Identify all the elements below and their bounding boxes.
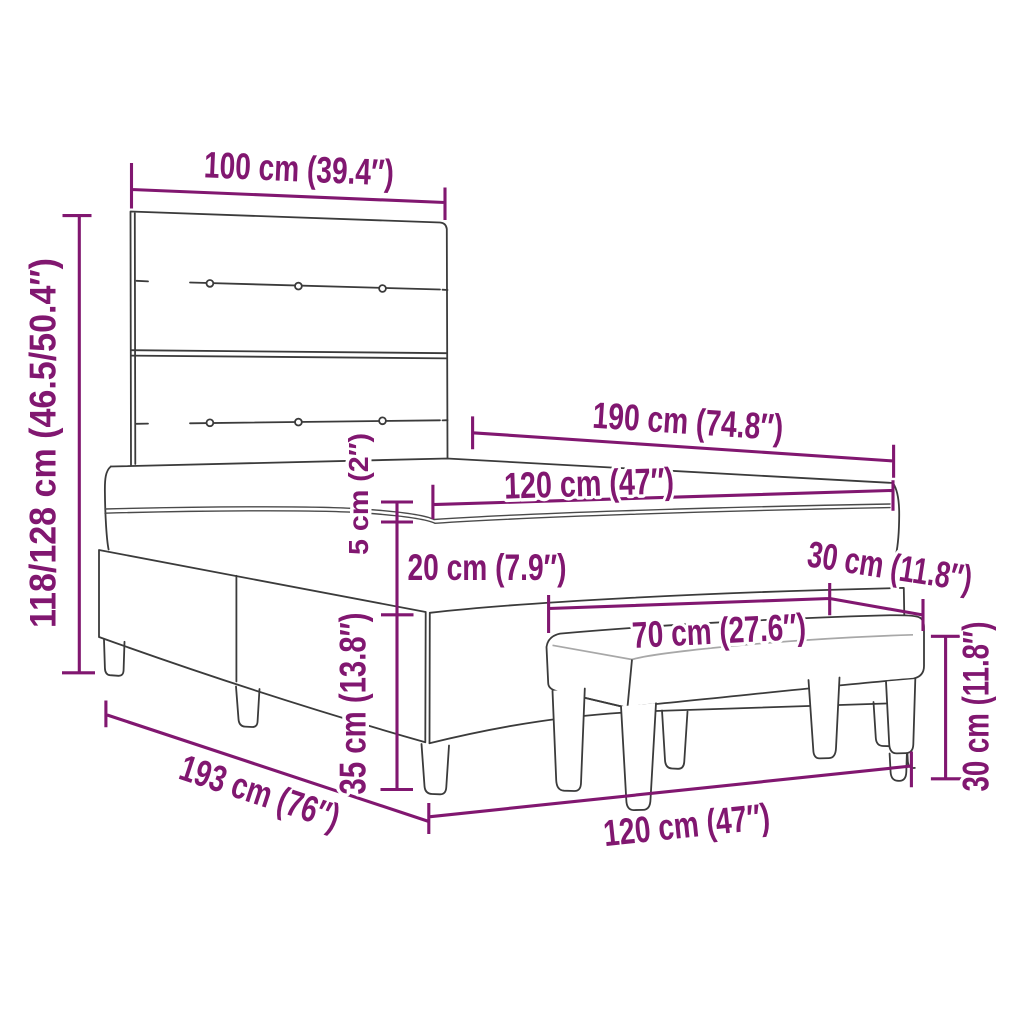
- svg-text:5 cm (2″): 5 cm (2″): [343, 433, 374, 555]
- svg-text:118/128 cm (46.5/50.4″): 118/128 cm (46.5/50.4″): [22, 258, 63, 628]
- svg-text:35 cm (13.8″): 35 cm (13.8″): [332, 613, 373, 795]
- svg-text:100 cm (39.4″): 100 cm (39.4″): [203, 144, 395, 193]
- svg-text:30 cm (11.8″): 30 cm (11.8″): [955, 622, 996, 792]
- svg-text:20 cm (7.9″): 20 cm (7.9″): [408, 547, 567, 588]
- svg-text:120 cm (47″): 120 cm (47″): [503, 460, 674, 506]
